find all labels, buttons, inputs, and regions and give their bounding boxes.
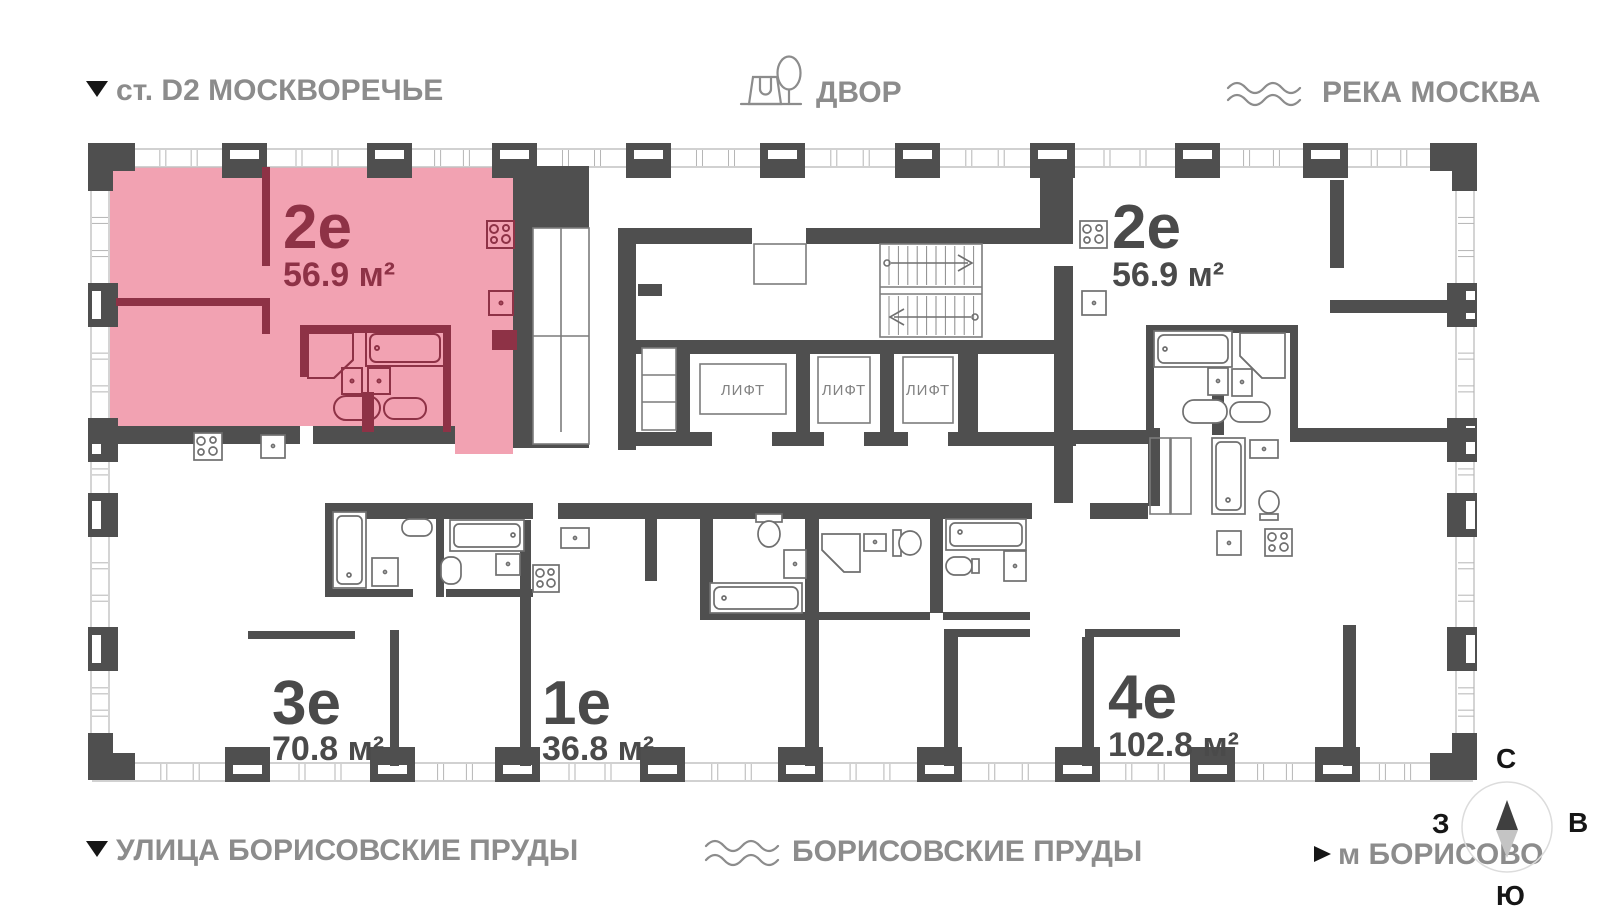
elevator-1-label: ЛИФТ (721, 382, 765, 399)
elevator-2-label: ЛИФТ (822, 382, 866, 399)
apartment-2e-right-region[interactable] (1073, 166, 1477, 428)
window-sill (768, 150, 797, 159)
floor-plan-page: ЛИФТ ЛИФТ ЛИФТ (0, 0, 1600, 920)
elevator-bank: ЛИФТ ЛИФТ ЛИФТ (700, 357, 953, 423)
service-core: ЛИФТ ЛИФТ ЛИФТ (533, 228, 982, 444)
window-sill (1183, 150, 1212, 159)
window-sill (1198, 765, 1227, 774)
window-sill (1466, 635, 1475, 663)
window-sill (925, 765, 954, 774)
window-sill (1063, 765, 1092, 774)
apartment-4e-region[interactable] (943, 445, 1455, 763)
river-label: РЕКА МОСКВА (1322, 76, 1540, 109)
apartment-2e-left-region[interactable] (110, 167, 513, 454)
station-label: ст. D2 МОСКВОРЕЧЬЕ (116, 74, 443, 107)
street-marker-icon (86, 841, 108, 857)
window-sill (1311, 150, 1340, 159)
toilet-icon (441, 557, 461, 584)
river-waves-icon (1228, 83, 1300, 105)
vestibule (754, 244, 806, 284)
elevator-3-label: ЛИФТ (906, 382, 950, 399)
pier-column (626, 143, 671, 178)
window-sill (634, 150, 663, 159)
window-sill (92, 291, 101, 319)
small-shaft (642, 348, 676, 430)
pier-column (895, 143, 940, 178)
sink-icon (864, 534, 886, 551)
shower-icon (822, 534, 860, 572)
window-sill (500, 150, 529, 159)
window-sill (503, 765, 532, 774)
sink-icon (496, 554, 520, 575)
compass-north-label: С (1496, 743, 1516, 774)
courtyard-label: ДВОР (816, 76, 902, 109)
window-sill (1323, 765, 1352, 774)
ponds-label: БОРИСОВСКИЕ ПРУДЫ (792, 835, 1142, 868)
window-sill (92, 501, 101, 529)
toilet-icon (402, 519, 432, 536)
courtyard-icon (741, 57, 801, 105)
window-sill (1466, 501, 1475, 529)
metro-marker-icon (1314, 846, 1331, 862)
compass-east-label: В (1568, 807, 1588, 838)
station-marker-icon (86, 81, 108, 97)
compass-south-label: Ю (1496, 880, 1525, 911)
apartment-1e-region[interactable] (531, 519, 805, 764)
window-sill (903, 150, 932, 159)
window-sill (233, 765, 262, 774)
window-sill (375, 150, 404, 159)
street-label: УЛИЦА БОРИСОВСКИЕ ПРУДЫ (116, 834, 578, 867)
window-sill (786, 765, 815, 774)
window-sill (1038, 150, 1067, 159)
compass-needle-north (1496, 800, 1518, 830)
pier-column (760, 143, 805, 178)
staircase (880, 244, 982, 337)
ponds-waves-icon (706, 841, 778, 865)
window-sill (230, 150, 259, 159)
compass-west-label: З (1432, 808, 1450, 839)
window-sill (92, 635, 101, 663)
apartment-3e-region[interactable] (110, 444, 390, 763)
